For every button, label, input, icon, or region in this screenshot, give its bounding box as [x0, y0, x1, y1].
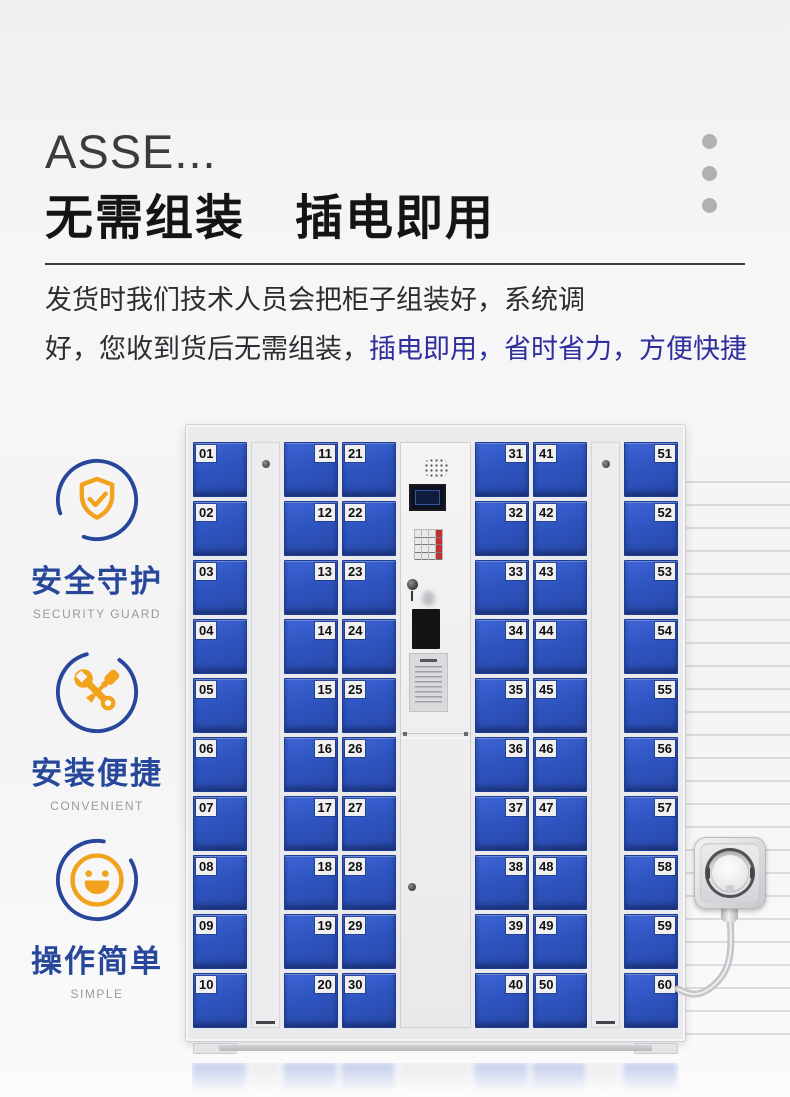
locker-door-22: 22: [342, 501, 396, 556]
locker-door-53: 53: [624, 560, 678, 615]
door-number: 30: [345, 976, 365, 993]
display-screen: [409, 484, 446, 511]
door-number: 32: [506, 504, 526, 521]
reflection-cell: [399, 1063, 470, 1095]
plinth-bar: [219, 1045, 652, 1051]
keypad-key: [415, 530, 421, 537]
door-number: 52: [655, 504, 675, 521]
locker-door-12: 12: [284, 501, 338, 556]
locker-door-28: 28: [342, 855, 396, 910]
feature-security: 安全守护 SECURITY GUARD: [2, 456, 192, 621]
locker-door-10: 10: [193, 973, 247, 1028]
keypad-key: [429, 545, 435, 552]
keypad-key-red: [436, 530, 442, 537]
door-number: 53: [655, 563, 675, 580]
locker-door-54: 54: [624, 619, 678, 674]
locker-door-17: 17: [284, 796, 338, 851]
dot-icon: [702, 166, 717, 181]
locker-door-45: 45: [533, 678, 587, 733]
door-number: 26: [345, 740, 365, 757]
door-number: 11: [315, 445, 335, 462]
keypad-key: [422, 538, 428, 545]
door-number: 01: [196, 445, 216, 462]
hanging-key: [422, 591, 435, 606]
locker-door-13: 13: [284, 560, 338, 615]
cabinet-plinth: [185, 1042, 686, 1058]
locker-door-08: 08: [193, 855, 247, 910]
door-number: 03: [196, 563, 216, 580]
keypad-key: [415, 553, 421, 560]
feature-subtitle: SIMPLE: [2, 987, 192, 1001]
feature-subtitle: CONVENIENT: [2, 799, 192, 813]
door-number: 39: [506, 917, 526, 934]
door-number: 38: [506, 858, 526, 875]
lock-icon: [407, 579, 418, 590]
door-number: 16: [315, 740, 335, 757]
locker-cabinet: 0102030405060708091011121314151617181920…: [185, 424, 686, 1042]
plug-nub: [726, 885, 734, 893]
locker-door-47: 47: [533, 796, 587, 851]
description-line2: 好，您收到货后无需组装，插电即用，省时省力，方便快捷: [45, 325, 765, 374]
tools-icon: [53, 648, 141, 736]
door-number: 23: [345, 563, 365, 580]
locker-door-27: 27: [342, 796, 396, 851]
locker-door-34: 34: [475, 619, 529, 674]
decorative-dots: [702, 134, 717, 213]
door-number: 09: [196, 917, 216, 934]
locker-door-37: 37: [475, 796, 529, 851]
reflection-cell: [623, 1063, 677, 1095]
door-number: 58: [655, 858, 675, 875]
door-number: 08: [196, 858, 216, 875]
door-number: 34: [506, 622, 526, 639]
door-number: 54: [655, 622, 675, 639]
door-number: 04: [196, 622, 216, 639]
keypad-key: [422, 553, 428, 560]
locker-door-11: 11: [284, 442, 338, 497]
door-number: 49: [536, 917, 556, 934]
keypad-key-red: [436, 538, 442, 545]
locker-door-02: 02: [193, 501, 247, 556]
locker-door-48: 48: [533, 855, 587, 910]
locker-door-33: 33: [475, 560, 529, 615]
door-number: 42: [536, 504, 556, 521]
reflection-cell: [474, 1063, 528, 1095]
locker-door-18: 18: [284, 855, 338, 910]
locker-door-23: 23: [342, 560, 396, 615]
locker-door-36: 36: [475, 737, 529, 792]
door-number: 45: [536, 681, 556, 698]
door-number: 56: [655, 740, 675, 757]
feature-install: 安装便捷 CONVENIENT: [2, 648, 192, 813]
keypad-key: [429, 538, 435, 545]
door-number: 50: [536, 976, 556, 993]
power-plug: [712, 855, 748, 891]
door-number: 18: [315, 858, 335, 875]
locker-door-21: 21: [342, 442, 396, 497]
locker-door-24: 24: [342, 619, 396, 674]
door-number: 47: [536, 799, 556, 816]
door-number: 05: [196, 681, 216, 698]
door-number: 37: [506, 799, 526, 816]
dot-icon: [702, 198, 717, 213]
locker-grid: 0102030405060708091011121314151617181920…: [186, 425, 685, 1041]
locker-door-01: 01: [193, 442, 247, 497]
keypad-key: [429, 553, 435, 560]
divider-panel: [591, 442, 620, 1028]
description: 发货时我们技术人员会把柜子组装好，系统调 好，您收到货后无需组装，插电即用，省时…: [45, 276, 765, 374]
locker-door-55: 55: [624, 678, 678, 733]
locker-door-40: 40: [475, 973, 529, 1028]
product-banner: ASSE... 无需组装 插电即用 发货时我们技术人员会把柜子组装好，系统调 好…: [0, 0, 790, 1097]
shield-check-icon: [53, 456, 141, 544]
door-number: 35: [506, 681, 526, 698]
locker-door-31: 31: [475, 442, 529, 497]
panel-seam: [401, 733, 470, 739]
speaker-grille-icon: [423, 457, 449, 479]
power-socket: [694, 837, 766, 909]
door-number: 27: [345, 799, 365, 816]
locker-door-16: 16: [284, 737, 338, 792]
locker-door-09: 09: [193, 914, 247, 969]
reflection-cell: [590, 1063, 619, 1095]
door-number: 14: [315, 622, 335, 639]
door-number: 17: [315, 799, 335, 816]
floor-reflection: [192, 1063, 679, 1095]
notice-label: [409, 653, 448, 712]
door-number: 48: [536, 858, 556, 875]
locker-door-19: 19: [284, 914, 338, 969]
locker-door-50: 50: [533, 973, 587, 1028]
reflection-cell: [341, 1063, 395, 1095]
feature-title: 安装便捷: [2, 748, 192, 793]
keypad-key: [415, 545, 421, 552]
locker-door-51: 51: [624, 442, 678, 497]
door-number: 19: [315, 917, 335, 934]
locker-door-14: 14: [284, 619, 338, 674]
locker-door-29: 29: [342, 914, 396, 969]
divider-line: [45, 263, 745, 265]
door-number: 46: [536, 740, 556, 757]
keypad-key: [422, 530, 428, 537]
reflection-cell: [283, 1063, 337, 1095]
door-number: 44: [536, 622, 556, 639]
feature-title: 安全守护: [2, 556, 192, 601]
smiley-icon: [53, 836, 141, 924]
locker-door-26: 26: [342, 737, 396, 792]
door-number: 55: [655, 681, 675, 698]
locker-door-15: 15: [284, 678, 338, 733]
description-line1: 发货时我们技术人员会把柜子组装好，系统调: [45, 276, 765, 325]
door-number: 57: [655, 799, 675, 816]
keypad-key: [429, 530, 435, 537]
door-number: 40: [506, 976, 526, 993]
locker-door-52: 52: [624, 501, 678, 556]
locker-door-03: 03: [193, 560, 247, 615]
socket-plate: [700, 843, 760, 903]
plug-clip: [706, 867, 710, 879]
power-cord: [640, 895, 770, 1035]
locker-door-43: 43: [533, 560, 587, 615]
reflection-cell: [532, 1063, 586, 1095]
locker-door-35: 35: [475, 678, 529, 733]
reflection-cell: [250, 1063, 279, 1095]
door-number: 06: [196, 740, 216, 757]
locker-door-41: 41: [533, 442, 587, 497]
screen-glow: [415, 490, 440, 505]
door-number: 31: [506, 445, 526, 462]
door-number: 24: [345, 622, 365, 639]
door-number: 51: [655, 445, 675, 462]
door-number: 36: [506, 740, 526, 757]
locker-door-57: 57: [624, 796, 678, 851]
keypad-key-red: [436, 553, 442, 560]
locker-door-05: 05: [193, 678, 247, 733]
description-highlight: 插电即用，省时省力，方便快捷: [369, 334, 747, 364]
plug-clip: [750, 867, 754, 879]
locker-door-56: 56: [624, 737, 678, 792]
door-number: 20: [315, 976, 335, 993]
description-line2-plain: 好，您收到货后无需组装，: [45, 334, 369, 364]
keypad: [414, 529, 443, 560]
keypad-key: [422, 545, 428, 552]
door-number: 22: [345, 504, 365, 521]
door-number: 12: [315, 504, 335, 521]
page-title: 无需组装 插电即用: [45, 178, 495, 248]
console-panel: [400, 442, 471, 1028]
lower-lock-icon: [408, 883, 416, 891]
card-reader-window: [412, 609, 440, 649]
door-number: 41: [536, 445, 556, 462]
feature-subtitle: SECURITY GUARD: [2, 607, 192, 621]
door-number: 33: [506, 563, 526, 580]
locker-door-20: 20: [284, 973, 338, 1028]
locker-door-04: 04: [193, 619, 247, 674]
locker-door-39: 39: [475, 914, 529, 969]
feature-simple: 操作简单 SIMPLE: [2, 836, 192, 1001]
locker-door-38: 38: [475, 855, 529, 910]
door-number: 43: [536, 563, 556, 580]
locker-door-06: 06: [193, 737, 247, 792]
locker-door-46: 46: [533, 737, 587, 792]
dot-icon: [702, 134, 717, 149]
door-number: 10: [196, 976, 216, 993]
door-number: 15: [315, 681, 335, 698]
door-number: 21: [345, 445, 365, 462]
door-number: 07: [196, 799, 216, 816]
keypad-key: [415, 538, 421, 545]
feature-title: 操作简单: [2, 936, 192, 981]
door-number: 29: [345, 917, 365, 934]
door-number: 13: [315, 563, 335, 580]
locker-door-32: 32: [475, 501, 529, 556]
locker-door-44: 44: [533, 619, 587, 674]
reflection-cell: [192, 1063, 246, 1095]
door-number: 02: [196, 504, 216, 521]
locker-door-30: 30: [342, 973, 396, 1028]
locker-door-25: 25: [342, 678, 396, 733]
door-number: 25: [345, 681, 365, 698]
locker-door-49: 49: [533, 914, 587, 969]
title-en: ASSE...: [45, 124, 217, 179]
locker-door-07: 07: [193, 796, 247, 851]
keypad-key-red: [436, 545, 442, 552]
door-number: 28: [345, 858, 365, 875]
locker-door-42: 42: [533, 501, 587, 556]
divider-panel: [251, 442, 280, 1028]
